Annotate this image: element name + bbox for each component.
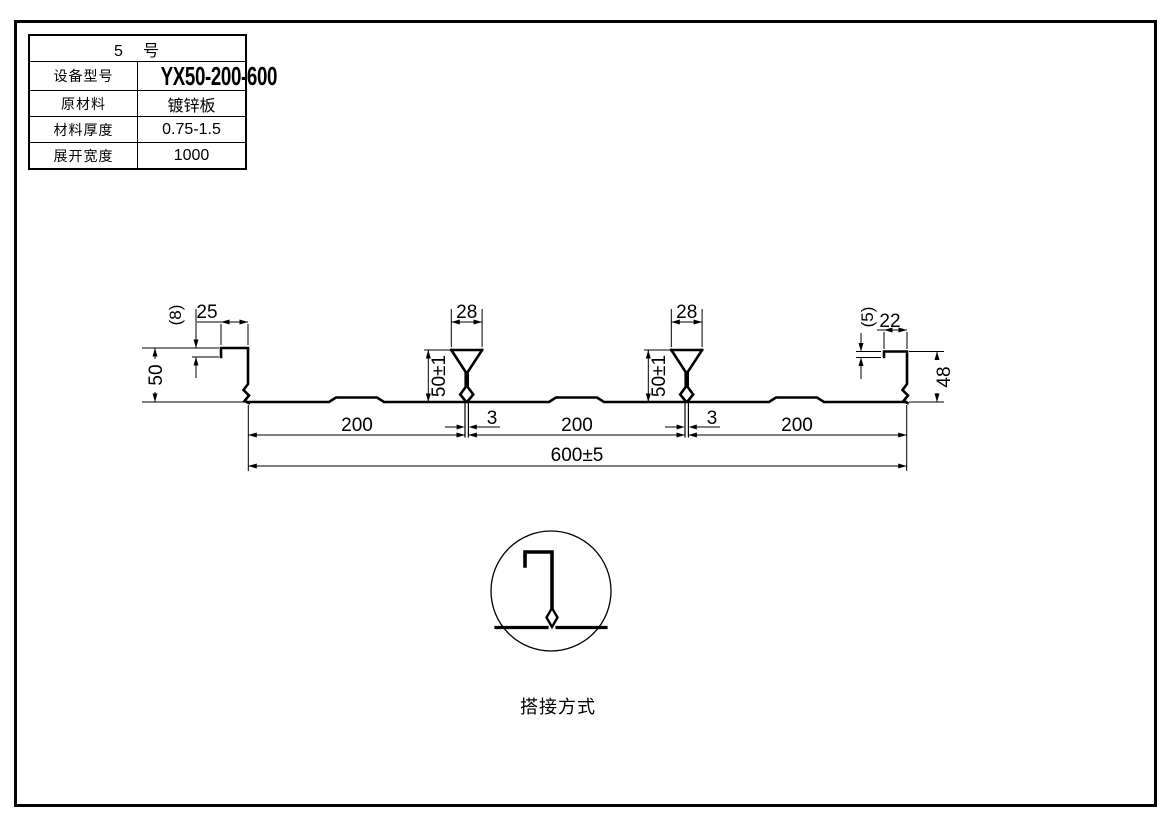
base-flat-outline <box>247 398 906 403</box>
dim-left-lip-text: (8) <box>166 305 185 326</box>
dim-rib1-width-text: 28 <box>456 302 477 323</box>
detail-label: 搭接方式 <box>520 697 596 717</box>
left-end-outline <box>221 348 249 403</box>
detail-seam-diamond <box>547 608 558 627</box>
dim-rib2-height: 50±1 <box>644 350 670 402</box>
dim-left-height: 50 <box>142 348 245 402</box>
rib1-outline <box>451 350 482 402</box>
dim-rib2-seam: 3 <box>665 408 720 430</box>
dim-rib2-height-text: 50±1 <box>649 355 670 397</box>
dim-rib1-height-text: 50±1 <box>429 355 450 397</box>
dim-rib2-width-text: 28 <box>676 302 697 323</box>
dim-right-flange-text: 22 <box>879 311 900 332</box>
dim-right-lip: (5) <box>856 307 881 379</box>
dim-left-height-text: 50 <box>146 364 167 385</box>
dim-rib2-seam-text: 3 <box>707 408 718 429</box>
dim-span2-text: 200 <box>561 415 593 436</box>
detail-hook-outline <box>525 552 552 608</box>
dim-overall-width-text: 600±5 <box>551 445 604 466</box>
dim-rib1-seam: 3 <box>445 408 500 430</box>
dim-rib1-width: 28 <box>451 302 482 347</box>
dim-span1-text: 200 <box>341 415 373 436</box>
dim-right-height: 48 <box>909 352 955 403</box>
drawing-sheet: 5 号 设备型号 YX50-200-600 原材料 镀锌板 材料厚度 0.75-… <box>0 0 1169 827</box>
dim-rib1-height: 50±1 <box>424 350 450 402</box>
lap-joint-detail: 搭接方式 <box>491 531 611 717</box>
dim-overall-width: 600±5 <box>248 445 906 469</box>
dim-right-flange: 22 <box>877 311 907 349</box>
rib2-outline <box>671 350 702 402</box>
right-end-outline <box>884 352 908 404</box>
profile-drawing: 50 (8) 25 28 50±1 <box>0 0 1169 827</box>
dim-left-flange-text: 25 <box>196 302 217 323</box>
dim-right-lip-text: (5) <box>858 307 877 328</box>
dim-left-flange: 25 <box>196 302 248 345</box>
profile-outline <box>221 348 908 403</box>
dim-rib2-width: 28 <box>671 302 702 347</box>
dim-span3-text: 200 <box>781 415 813 436</box>
dim-right-height-text: 48 <box>934 366 955 387</box>
dim-rib1-seam-text: 3 <box>487 408 498 429</box>
